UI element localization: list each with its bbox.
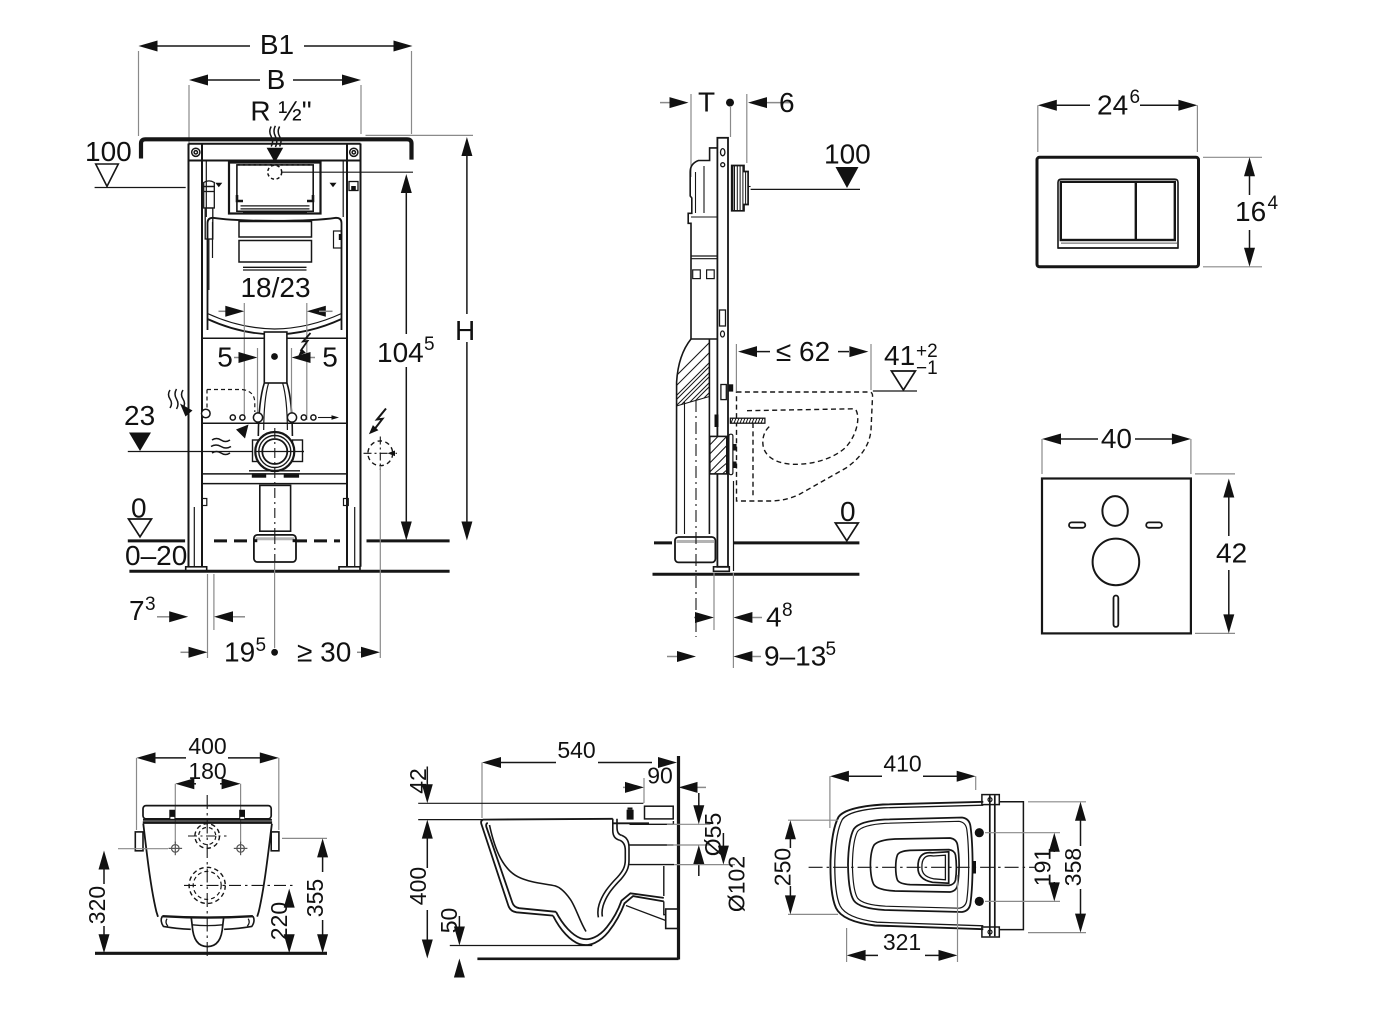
svg-text:7: 7	[129, 595, 145, 626]
svg-text:191: 191	[1030, 848, 1056, 886]
svg-text:16: 16	[1235, 196, 1266, 227]
svg-text:180: 180	[188, 758, 226, 784]
svg-text:410: 410	[883, 751, 921, 777]
svg-text:H: H	[455, 315, 475, 346]
svg-text:B1: B1	[260, 29, 294, 60]
svg-text:220: 220	[266, 902, 292, 940]
svg-text:0–20: 0–20	[125, 540, 187, 571]
svg-text:104: 104	[377, 337, 424, 368]
svg-text:3: 3	[145, 594, 156, 615]
svg-text:321: 321	[883, 929, 921, 955]
svg-text:5: 5	[256, 635, 267, 656]
svg-text:≥ 30: ≥ 30	[297, 637, 351, 668]
svg-text:5: 5	[826, 639, 837, 660]
svg-text:250: 250	[770, 848, 796, 886]
svg-text:8: 8	[782, 600, 793, 621]
svg-text:6: 6	[1130, 87, 1141, 108]
svg-text:18/23: 18/23	[240, 272, 310, 303]
svg-text:41: 41	[884, 340, 915, 371]
svg-text:540: 540	[557, 737, 595, 763]
svg-text:100: 100	[824, 139, 871, 170]
svg-text:6: 6	[779, 87, 795, 118]
svg-text:42: 42	[1216, 538, 1247, 569]
svg-text:23: 23	[124, 400, 155, 431]
svg-text:9–13: 9–13	[764, 641, 826, 672]
svg-text:19: 19	[224, 637, 255, 668]
svg-text:400: 400	[188, 733, 226, 759]
svg-text:T: T	[698, 87, 715, 118]
svg-text:≤ 62: ≤ 62	[776, 336, 830, 367]
svg-text:40: 40	[1101, 423, 1132, 454]
svg-text:5: 5	[217, 342, 233, 373]
svg-text:B: B	[267, 64, 286, 95]
svg-text:4: 4	[1268, 193, 1279, 214]
svg-text:100: 100	[85, 136, 132, 167]
svg-text:5: 5	[322, 342, 338, 373]
svg-text:24: 24	[1097, 90, 1128, 121]
svg-text:−1: −1	[916, 358, 938, 379]
svg-text:320: 320	[84, 886, 110, 924]
svg-text:Ø102: Ø102	[724, 856, 750, 912]
svg-text:355: 355	[302, 879, 328, 917]
svg-text:50: 50	[436, 908, 462, 934]
svg-text:400: 400	[405, 867, 431, 905]
svg-text:R ½": R ½"	[250, 96, 311, 127]
svg-text:358: 358	[1060, 848, 1086, 886]
svg-text:4: 4	[766, 602, 782, 633]
svg-text:5: 5	[424, 334, 435, 355]
svg-text:90: 90	[647, 763, 673, 789]
